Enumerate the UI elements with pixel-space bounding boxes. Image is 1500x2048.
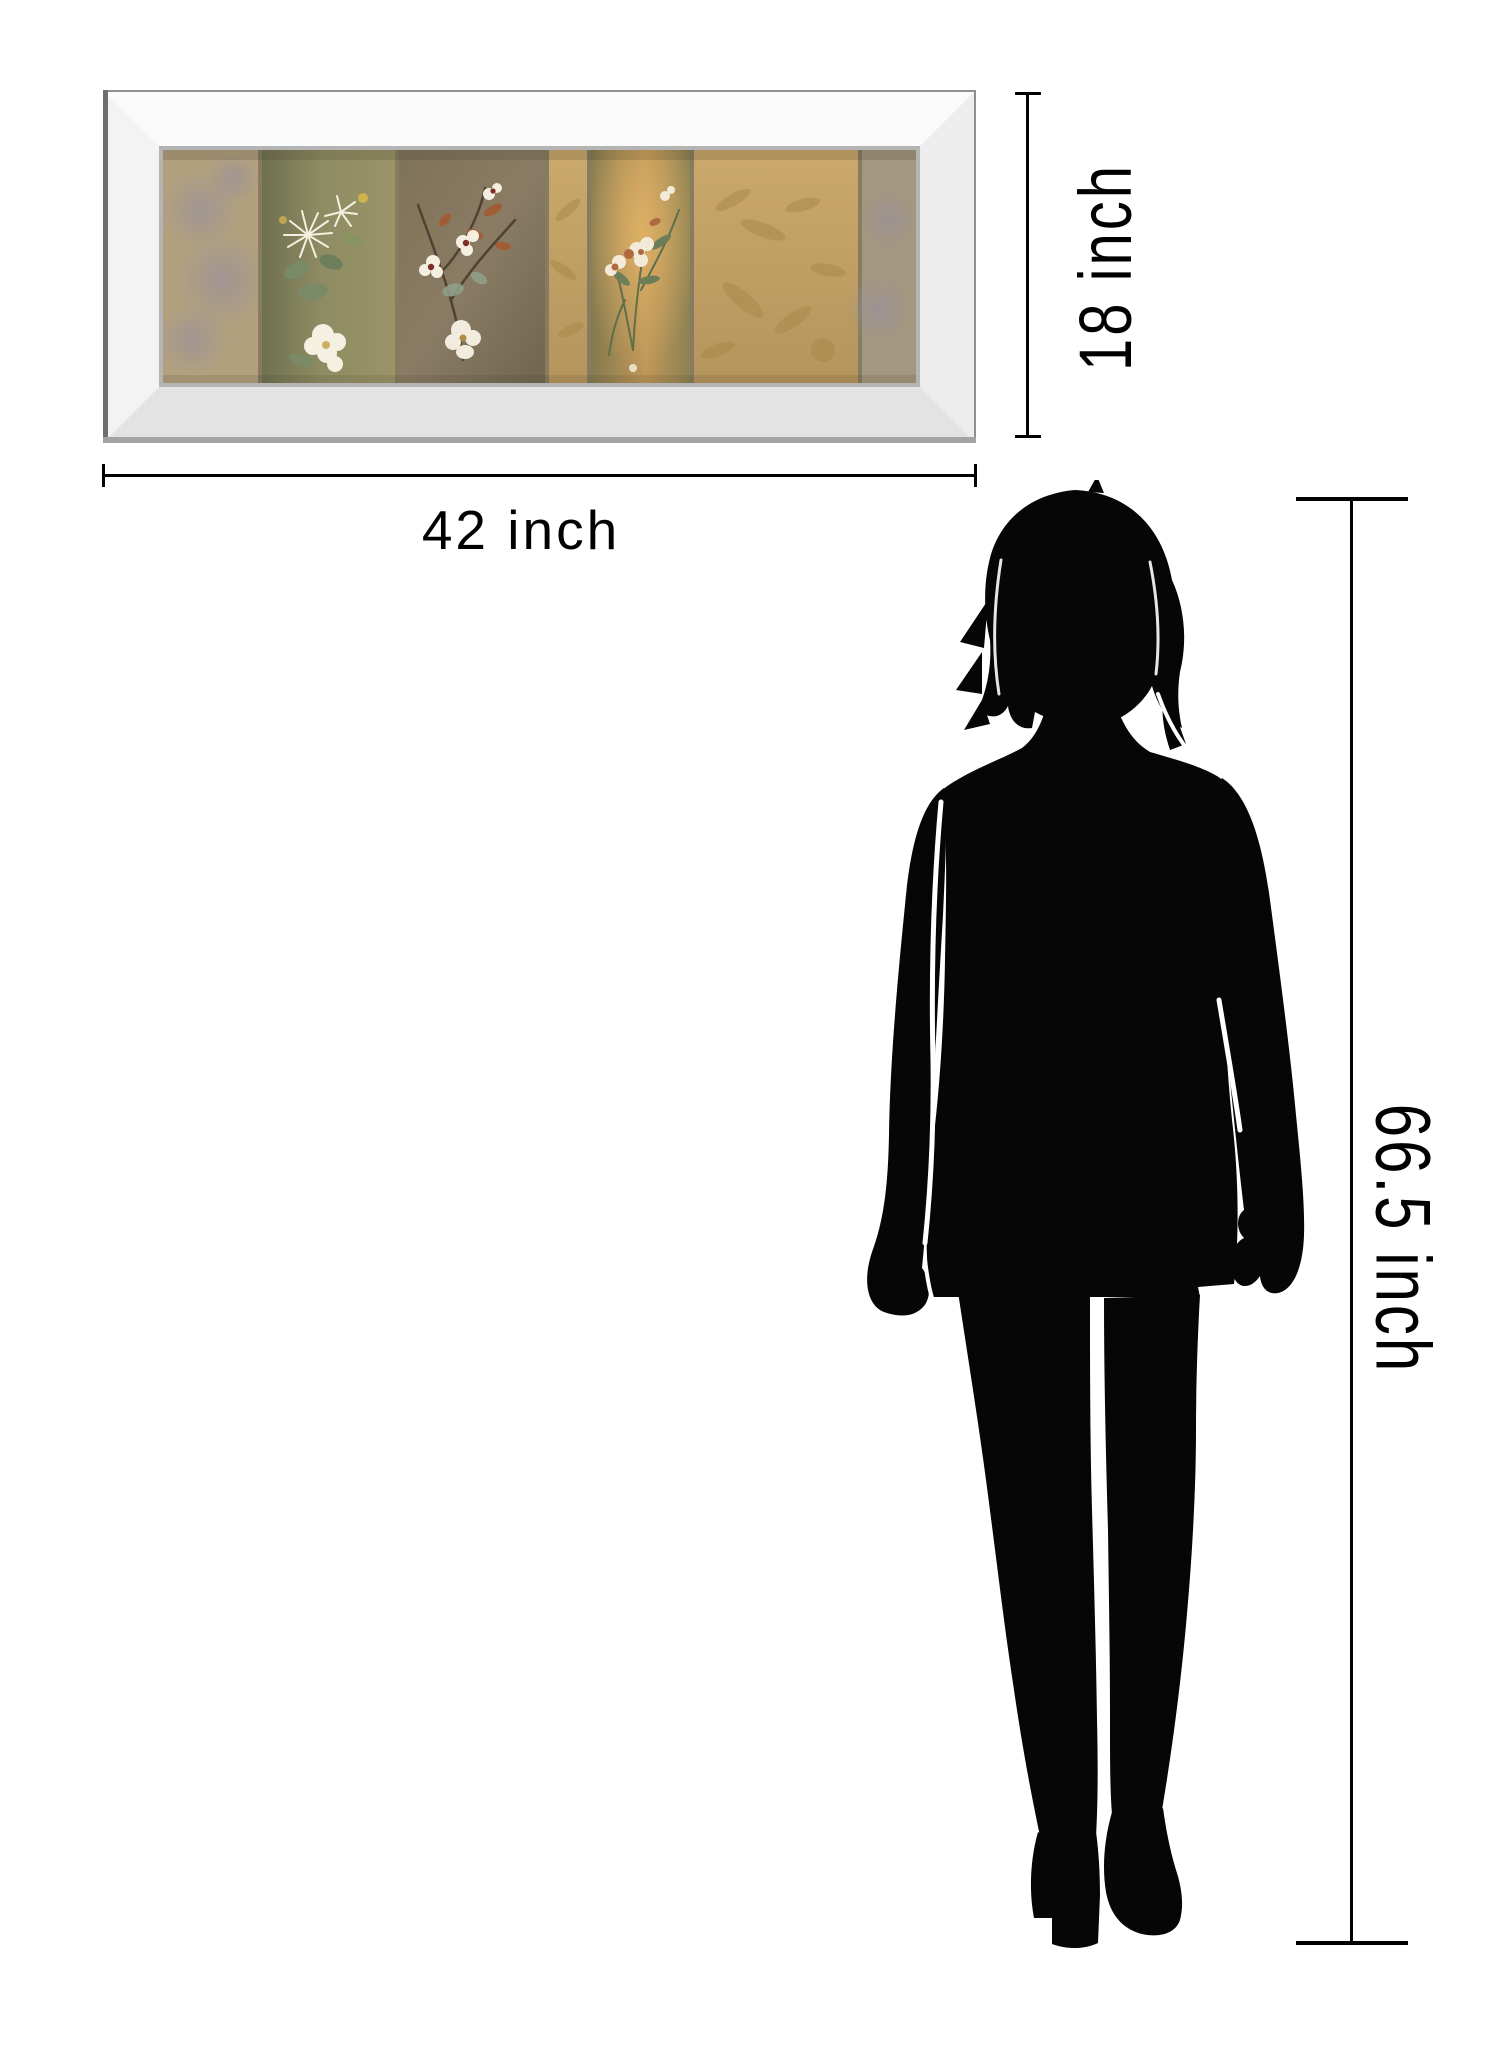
height-dimension-endcap-top (1015, 92, 1041, 95)
mirror-frame-bevel (105, 92, 974, 441)
person-height-endcap-top (1296, 497, 1408, 501)
framed-artwork (103, 90, 976, 443)
height-dimension-line (1026, 92, 1029, 438)
person-height-dimension-line (1350, 498, 1353, 1944)
frame-side-edge (103, 90, 108, 443)
height-dimension-endcap-bottom (1015, 435, 1041, 438)
height-dimension-label: 18 inch (1063, 163, 1149, 371)
width-dimension-line (103, 474, 976, 477)
width-dimension-endcap-left (102, 464, 105, 487)
person-height-dimension-label: 66.5 inch (1358, 1104, 1448, 1375)
frame-bottom-edge (103, 437, 976, 443)
person-height-endcap-bottom (1296, 1941, 1408, 1945)
frame-inner-lip (159, 146, 920, 387)
woman-silhouette (850, 480, 1370, 1960)
artwork-print (163, 150, 916, 383)
width-dimension-label: 42 inch (422, 498, 620, 562)
